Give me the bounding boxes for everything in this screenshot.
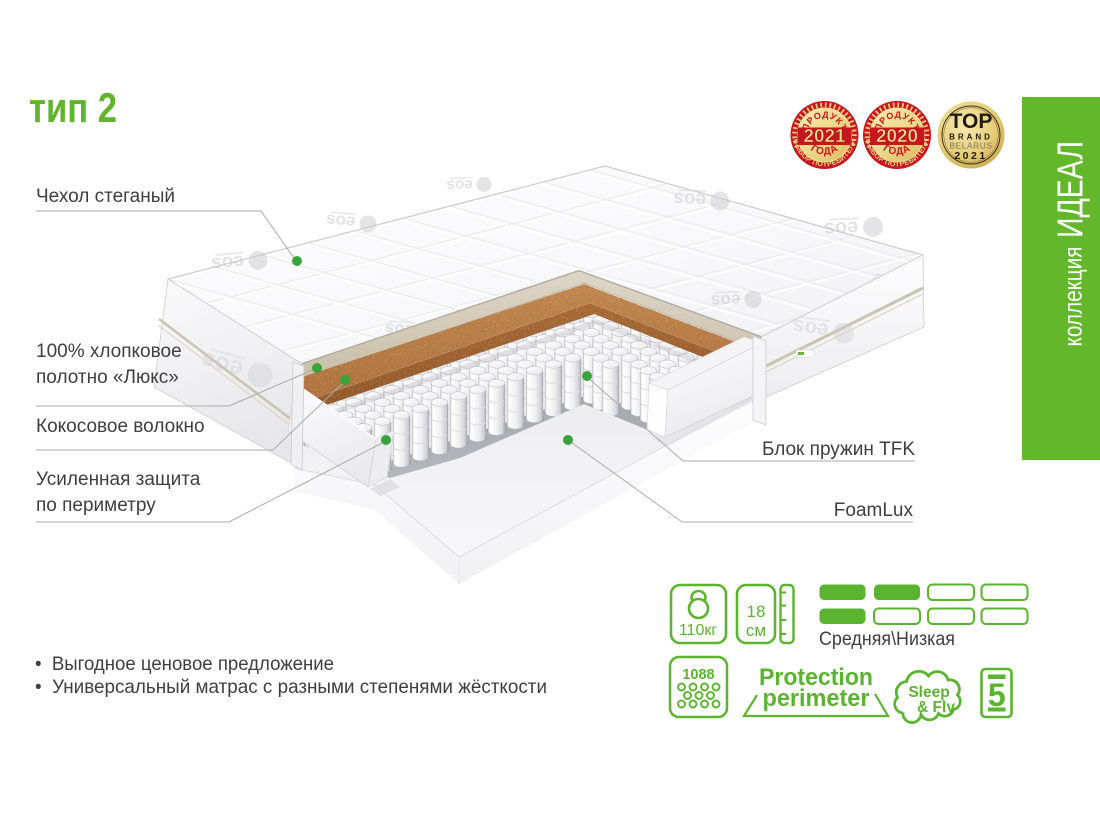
svg-text:BELARUS: BELARUS xyxy=(949,141,992,151)
svg-text:коллекция: коллекция xyxy=(1058,247,1088,347)
svg-text:• Универсальный матрас с разн: • Универсальный матрас с разными степеня… xyxy=(35,676,547,698)
svg-text:perimeter: perimeter xyxy=(763,685,870,712)
svg-text:2021: 2021 xyxy=(804,125,846,146)
svg-text:тип 2: тип 2 xyxy=(29,84,117,131)
svg-text:Чехол стеганый: Чехол стеганый xyxy=(36,186,175,207)
svg-text:18: 18 xyxy=(747,602,766,621)
svg-text:ИДЕАЛ: ИДЕАЛ xyxy=(1050,141,1091,238)
svg-text:см: см xyxy=(746,621,766,640)
svg-text:2021: 2021 xyxy=(954,150,987,162)
svg-text:& Fly: & Fly xyxy=(917,699,955,716)
svg-text:110кг: 110кг xyxy=(679,622,718,639)
svg-text:TOP: TOP xyxy=(950,110,993,133)
svg-text:1088: 1088 xyxy=(682,667,714,683)
svg-text:полотно «Люкс»: полотно «Люкс» xyxy=(36,367,179,388)
svg-text:100% хлопковое: 100% хлопковое xyxy=(36,341,182,362)
svg-text:Кокосовое волокно: Кокосовое волокно xyxy=(36,416,205,437)
svg-text:• Выгодное ценовое предложени: • Выгодное ценовое предложение xyxy=(35,653,334,675)
svg-text:по периметру: по периметру xyxy=(36,495,156,516)
svg-text:2020: 2020 xyxy=(876,125,918,146)
svg-text:Блок пружин TFK: Блок пружин TFK xyxy=(762,439,915,460)
svg-text:Усиленная защита: Усиленная защита xyxy=(36,469,201,490)
svg-text:FoamLux: FoamLux xyxy=(834,500,914,521)
svg-text:Средняя\Низкая: Средняя\Низкая xyxy=(819,628,955,650)
